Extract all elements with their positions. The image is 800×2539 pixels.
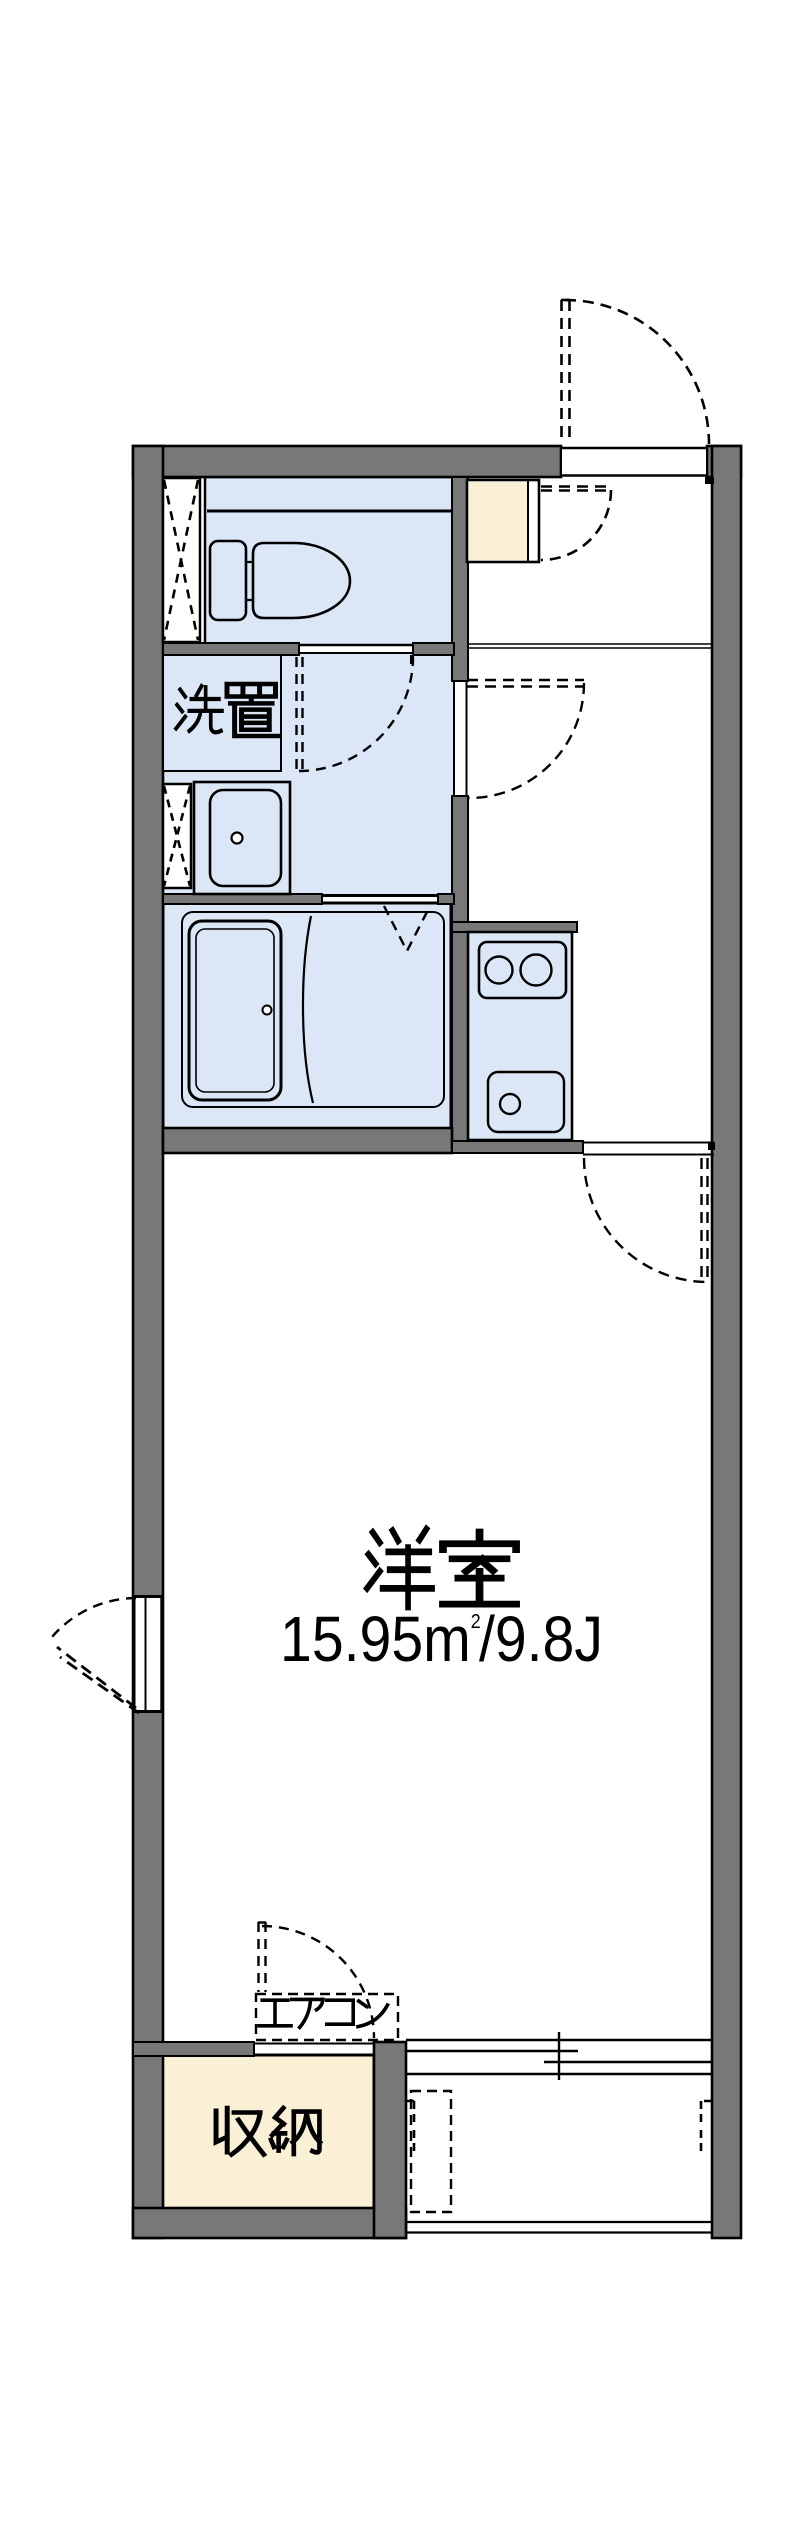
svg-text:15.95m2/9.8J: 15.95m2/9.8J — [280, 1603, 603, 1675]
